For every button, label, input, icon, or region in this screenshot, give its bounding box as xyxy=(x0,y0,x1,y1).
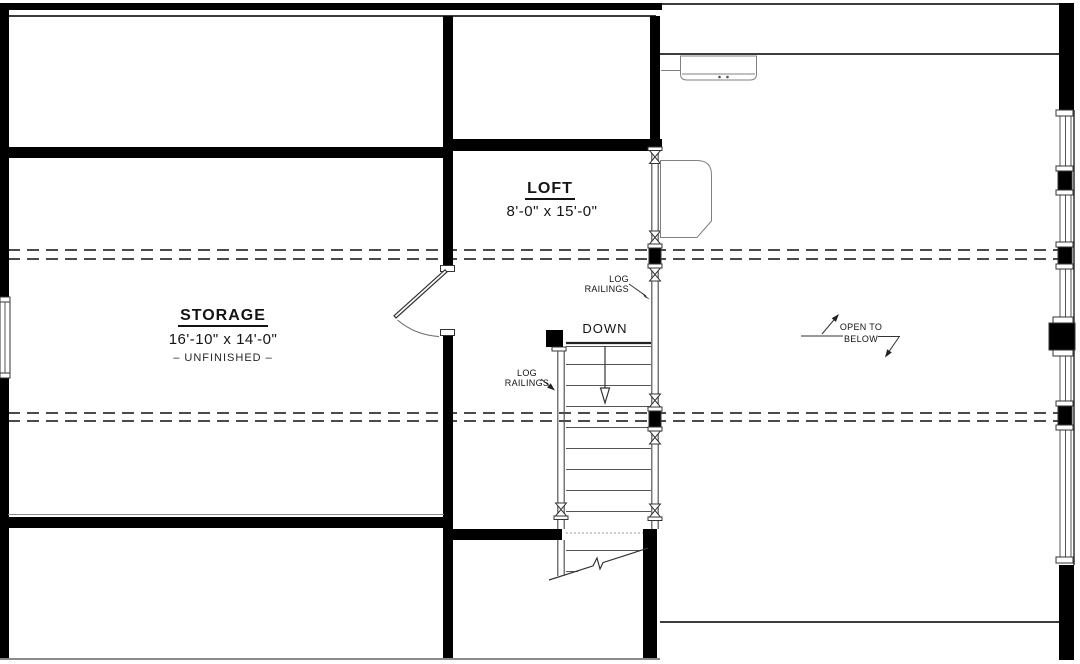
right-window-band xyxy=(1049,110,1075,565)
open-to-below-label: OPEN TO BELOW xyxy=(829,321,893,345)
open-to-below-line1: OPEN TO xyxy=(829,321,893,333)
log-railings-right-line1: LOG xyxy=(578,274,629,284)
railing-post xyxy=(546,330,563,347)
open-to-below-line2: BELOW xyxy=(829,333,893,345)
storage-note: – UNFINISHED – xyxy=(150,352,296,364)
storage-dimensions: 16'-10" x 14'-0" xyxy=(140,331,306,348)
shelf-fixture xyxy=(661,56,757,80)
storage-room-label: STORAGE xyxy=(160,307,286,325)
door-swing xyxy=(394,270,447,337)
floor-plan: LOFT 8'-0" x 15'-0" STORAGE 16'-10" x 14… xyxy=(0,0,1080,664)
down-arrow-icon xyxy=(601,346,610,403)
loft-dimensions: 8'-0" x 15'-0" xyxy=(472,203,632,220)
left-window xyxy=(0,297,10,378)
stair-railing xyxy=(546,330,568,576)
log-railings-leader-right xyxy=(629,284,650,300)
log-railings-left-line2: RAILINGS xyxy=(500,378,554,388)
loft-room-label: LOFT xyxy=(490,180,610,198)
stair-treads xyxy=(566,343,651,572)
desk-fixture xyxy=(661,161,712,238)
log-railings-left-line1: LOG xyxy=(500,368,554,378)
log-railings-label-left: LOG RAILINGS xyxy=(500,368,554,388)
log-railings-label-right: LOG RAILINGS xyxy=(578,274,629,294)
down-label: DOWN xyxy=(575,321,635,336)
log-railings-right-line2: RAILINGS xyxy=(578,284,629,294)
loft-railing xyxy=(648,147,662,529)
